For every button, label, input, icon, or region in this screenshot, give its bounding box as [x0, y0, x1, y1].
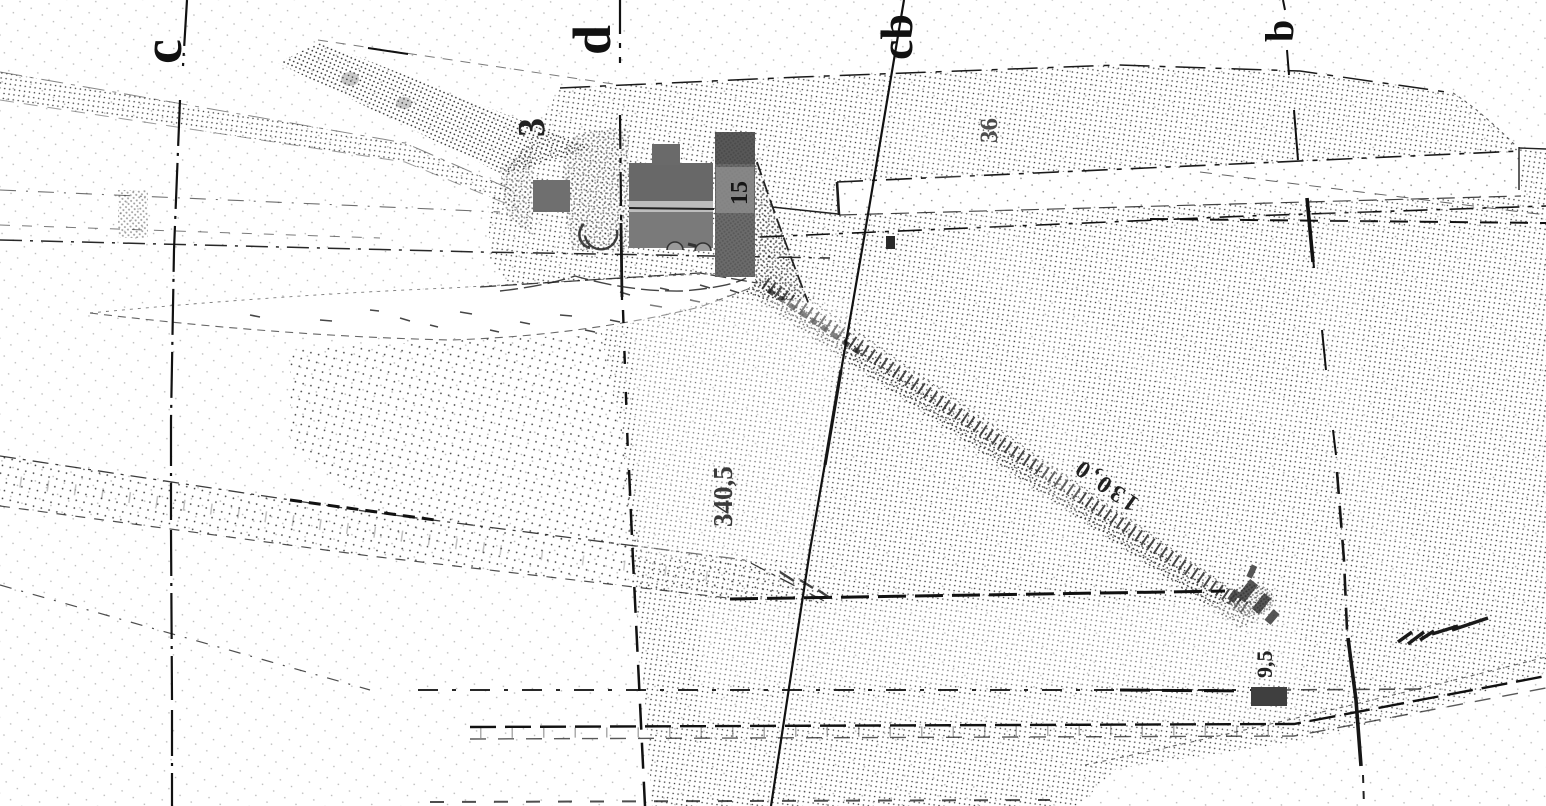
- svg-text:c: c: [132, 39, 194, 64]
- svg-text:340,5: 340,5: [708, 466, 738, 527]
- svg-text:b: b: [1257, 20, 1302, 42]
- svg-text:9,5: 9,5: [1252, 651, 1277, 679]
- svg-text:15: 15: [727, 181, 753, 205]
- svg-text:cb: cb: [871, 14, 922, 60]
- svg-text:3: 3: [511, 118, 553, 137]
- svg-text:d: d: [562, 25, 622, 55]
- svg-text:36: 36: [976, 118, 1003, 143]
